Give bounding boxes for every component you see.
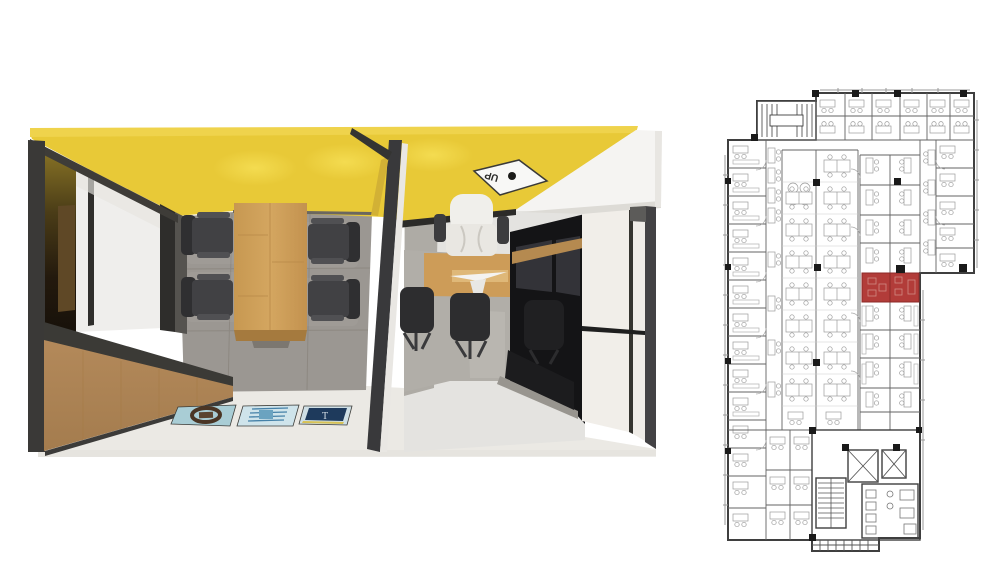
svg-text:T: T xyxy=(322,411,328,422)
